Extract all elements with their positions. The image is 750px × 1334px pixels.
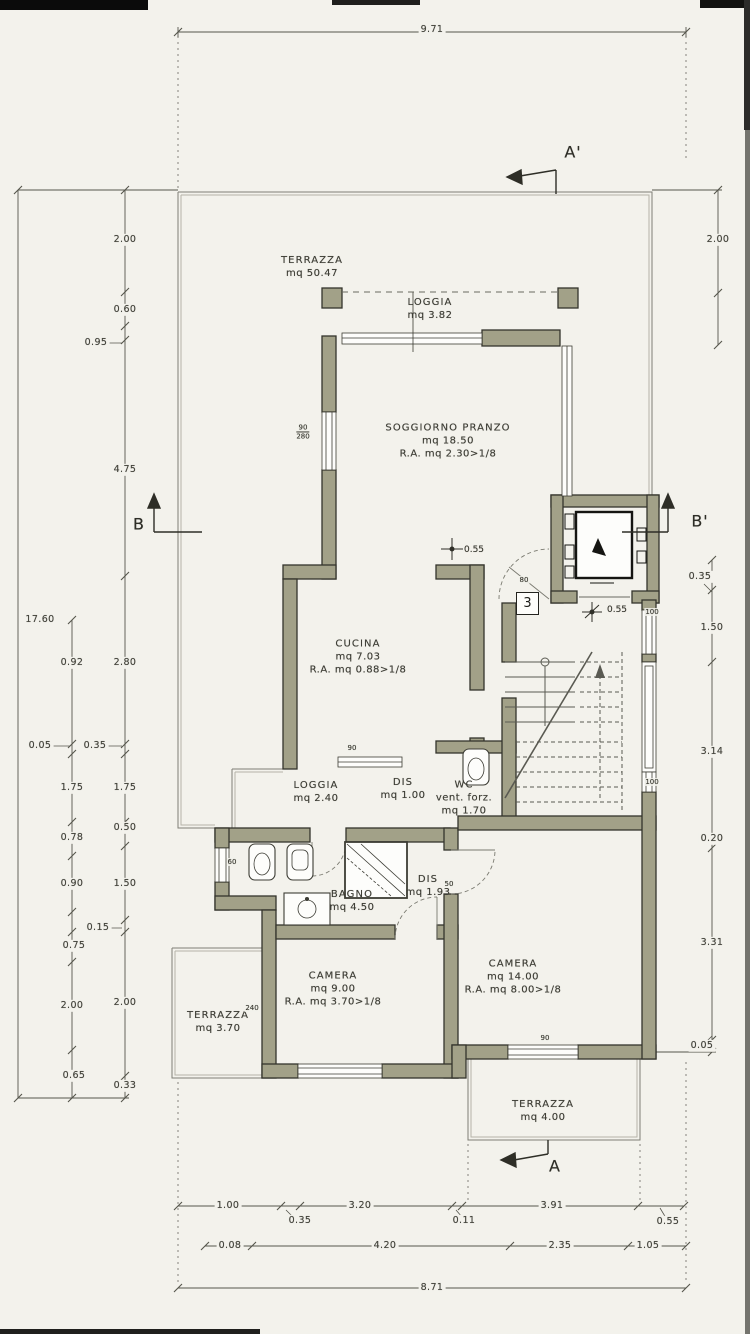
section-marker-b-right: B': [691, 512, 708, 531]
dimension-label-line: 0.11: [453, 1215, 476, 1227]
room-label-loggia-nord-line: mq 3.82: [407, 309, 452, 322]
dimension-label: 1.50: [699, 622, 726, 634]
dimension-label: 0.75: [61, 940, 88, 952]
dimension-label-line: 8.71: [421, 1282, 444, 1294]
room-label-camera-1: CAMERAmq 9.00R.A. mq 3.70>1/8: [285, 970, 382, 1009]
room-label-cucina-line: mq 7.03: [310, 651, 407, 664]
unit-number: 3: [523, 596, 531, 611]
room-label-camera-1-line: mq 9.00: [285, 983, 382, 996]
room-label-loggia-ovest-line: mq 2.40: [293, 792, 338, 805]
dimension-label: 0.95: [83, 337, 110, 349]
dimension-label-line: 1.05: [637, 1240, 660, 1252]
dimension-label-line: 3.91: [541, 1200, 564, 1212]
dimension-label: 2.00: [705, 234, 732, 246]
room-label-camera-2-line: mq 14.00: [465, 971, 562, 984]
dimension-label-line: 0.92: [61, 657, 84, 669]
room-label-loggia-ovest: LOGGIAmq 2.40: [293, 779, 338, 805]
window-tag: 100: [644, 778, 659, 786]
dimension-label: 3.20: [347, 1200, 374, 1212]
dimension-label-line: 3.31: [701, 937, 724, 949]
dimension-label-line: 9.71: [421, 24, 444, 36]
room-label-bagno-line: mq 4.50: [329, 901, 374, 914]
room-label-terrazza-ovest-line: TERRAZZA: [187, 1009, 249, 1022]
room-label-wc-line: mq 1.70: [436, 805, 492, 818]
room-label-camera-2: CAMERAmq 14.00R.A. mq 8.00>1/8: [465, 958, 562, 997]
dimension-label: 0.05: [689, 1040, 716, 1052]
window-tag-line: 240: [245, 1004, 258, 1012]
dimension-label: 4.75: [112, 464, 139, 476]
dimension-label: 3.14: [699, 746, 726, 758]
room-label-wc-line: vent. forz.: [436, 792, 492, 805]
window-tag: 90280: [295, 423, 310, 440]
dimension-label: 0.50: [112, 822, 139, 834]
dimension-label-line: 0.08: [219, 1240, 242, 1252]
dimension-label: 3.31: [699, 937, 726, 949]
dimension-label: 0.35: [287, 1215, 314, 1227]
section-marker-a-bottom: A: [549, 1157, 561, 1176]
dimension-label: 9.71: [419, 24, 446, 36]
level-mark-line: 0.55: [464, 545, 484, 557]
room-label-terrazza-grande: TERRAZZAmq 50.47: [281, 254, 343, 280]
dimension-label-line: 2.80: [114, 657, 137, 669]
window-tag: 240: [244, 1004, 259, 1012]
room-label-soggiorno-pranzo-line: mq 18.50: [385, 435, 510, 448]
dimension-label-line: 0.60: [114, 304, 137, 316]
dimension-label: 2.35: [547, 1240, 574, 1252]
dimension-label: 0.35: [82, 740, 109, 752]
dimension-label: 0.55: [655, 1216, 682, 1228]
dimension-label-line: 0.05: [691, 1040, 714, 1052]
dimension-label: 1.05: [635, 1240, 662, 1252]
room-label-soggiorno-pranzo: SOGGIORNO PRANZOmq 18.50R.A. mq 2.30>1/8: [385, 422, 510, 461]
window-tag-line: 90: [296, 423, 309, 431]
dimension-label-line: 0.75: [63, 940, 86, 952]
dimension-label-line: 1.00: [217, 1200, 240, 1212]
window-tag: 50: [444, 880, 455, 888]
dimension-label: 0.60: [112, 304, 139, 316]
room-label-loggia-nord-line: LOGGIA: [407, 296, 452, 309]
window-tag: 80: [519, 576, 530, 584]
dimension-label-line: 0.65: [63, 1070, 86, 1082]
room-label-terrazza-ovest: TERRAZZAmq 3.70: [187, 1009, 249, 1035]
dimension-label: 17.60: [23, 614, 56, 626]
dimension-label-line: 0.20: [701, 833, 724, 845]
dimension-label: 0.05: [27, 740, 54, 752]
window-tag-line: 100: [645, 608, 658, 616]
dimension-label: 0.33: [112, 1080, 139, 1092]
room-label-bagno-line: BAGNO: [329, 888, 374, 901]
room-label-wc: WCvent. forz.mq 1.70: [436, 779, 492, 818]
room-label-terrazza-grande-line: TERRAZZA: [281, 254, 343, 267]
room-label-terrazza-sud-line: mq 4.00: [512, 1111, 574, 1124]
dimension-label-line: 0.95: [85, 337, 108, 349]
dimension-label-line: 0.55: [657, 1216, 680, 1228]
room-label-soggiorno-pranzo-line: SOGGIORNO PRANZO: [385, 422, 510, 435]
room-label-camera-1-line: R.A. mq 3.70>1/8: [285, 996, 382, 1009]
dimension-label-line: 1.50: [701, 622, 724, 634]
dimension-label-line: 2.00: [114, 997, 137, 1009]
dimension-label: 0.08: [217, 1240, 244, 1252]
dimension-label-line: 0.90: [61, 878, 84, 890]
level-mark-line: 0.55: [607, 605, 627, 617]
dimension-label-line: 4.20: [374, 1240, 397, 1252]
dimension-label-line: 0.78: [61, 832, 84, 844]
room-label-bagno: BAGNOmq 4.50: [329, 888, 374, 914]
dimension-label: 0.92: [59, 657, 86, 669]
room-label-terrazza-grande-line: mq 50.47: [281, 267, 343, 280]
dimension-label-line: 1.75: [114, 782, 137, 794]
window-tag: 60: [227, 858, 238, 866]
dimension-label: 2.80: [112, 657, 139, 669]
room-label-loggia-nord: LOGGIAmq 3.82: [407, 296, 452, 322]
dimension-label: 0.78: [59, 832, 86, 844]
dimension-label-line: 0.33: [114, 1080, 137, 1092]
dimension-label-line: 2.00: [61, 1000, 84, 1012]
room-label-camera-2-line: R.A. mq 8.00>1/8: [465, 984, 562, 997]
dimension-label-line: 2.00: [707, 234, 730, 246]
floor-plan-page: A' A B B' 3 TERRAZZAmq 50.47LOGGIAmq 3.8…: [0, 0, 750, 1334]
dimension-label-line: 4.75: [114, 464, 137, 476]
room-label-terrazza-ovest-line: mq 3.70: [187, 1022, 249, 1035]
room-label-terrazza-sud-line: TERRAZZA: [512, 1098, 574, 1111]
dimension-label-line: 0.50: [114, 822, 137, 834]
dimension-label: 0.65: [61, 1070, 88, 1082]
window-tag: 100: [644, 608, 659, 616]
dimension-label: 1.00: [215, 1200, 242, 1212]
dimension-label-line: 0.35: [289, 1215, 312, 1227]
window-tag-line: 50: [445, 880, 454, 888]
room-label-camera-2-line: CAMERA: [465, 958, 562, 971]
room-label-disimpegno-1-line: DIS: [380, 776, 425, 789]
dimension-label-line: 0.35: [84, 740, 107, 752]
dimension-label: 1.75: [59, 782, 86, 794]
level-mark: 0.55: [464, 545, 484, 557]
dimension-label: 4.20: [372, 1240, 399, 1252]
dimension-label: 8.71: [419, 1282, 446, 1294]
window-tag-line: 100: [645, 778, 658, 786]
dimension-label: 2.00: [59, 1000, 86, 1012]
dimension-label-line: 2.00: [114, 234, 137, 246]
dimension-label: 1.75: [112, 782, 139, 794]
dimension-label: 0.11: [451, 1215, 478, 1227]
dimension-label: 2.00: [112, 234, 139, 246]
dimension-label-line: 1.75: [61, 782, 84, 794]
window-tag-line: 90: [541, 1034, 550, 1042]
room-label-soggiorno-pranzo-line: R.A. mq 2.30>1/8: [385, 448, 510, 461]
dimension-label: 2.00: [112, 997, 139, 1009]
window-tag: 90: [347, 744, 358, 752]
window-tag-line: 280: [296, 432, 309, 441]
dimension-label: 0.35: [687, 571, 714, 583]
dimension-label-line: 1.50: [114, 878, 137, 890]
window-tag-line: 60: [228, 858, 237, 866]
room-label-cucina-line: CUCINA: [310, 638, 407, 651]
window-tag-line: 80: [520, 576, 529, 584]
dimension-label-line: 0.05: [29, 740, 52, 752]
window-tag: 90: [540, 1034, 551, 1042]
dimension-label: 0.90: [59, 878, 86, 890]
dimension-label: 1.50: [112, 878, 139, 890]
room-label-camera-1-line: CAMERA: [285, 970, 382, 983]
dimension-label: 3.91: [539, 1200, 566, 1212]
section-marker-b-left: B: [133, 515, 145, 534]
window-tag-line: 90: [348, 744, 357, 752]
dimension-label-line: 2.35: [549, 1240, 572, 1252]
room-label-loggia-ovest-line: LOGGIA: [293, 779, 338, 792]
room-label-disimpegno-1-line: mq 1.00: [380, 789, 425, 802]
room-label-terrazza-sud: TERRAZZAmq 4.00: [512, 1098, 574, 1124]
room-label-cucina-line: R.A. mq 0.88>1/8: [310, 664, 407, 677]
dimension-label-line: 0.35: [689, 571, 712, 583]
room-label-cucina: CUCINAmq 7.03R.A. mq 0.88>1/8: [310, 638, 407, 677]
dimension-label: 0.20: [699, 833, 726, 845]
dimension-label-line: 3.20: [349, 1200, 372, 1212]
labels-layer: A' A B B' 3 TERRAZZAmq 50.47LOGGIAmq 3.8…: [0, 0, 750, 1334]
unit-number-box: 3: [516, 592, 539, 615]
level-mark: 0.55: [607, 605, 627, 617]
room-label-disimpegno-1: DISmq 1.00: [380, 776, 425, 802]
dimension-label: 0.15: [85, 922, 112, 934]
room-label-wc-line: WC: [436, 779, 492, 792]
dimension-label-line: 0.15: [87, 922, 110, 934]
section-marker-a-top: A': [564, 143, 581, 162]
dimension-label-line: 3.14: [701, 746, 724, 758]
dimension-label-line: 17.60: [25, 614, 54, 626]
